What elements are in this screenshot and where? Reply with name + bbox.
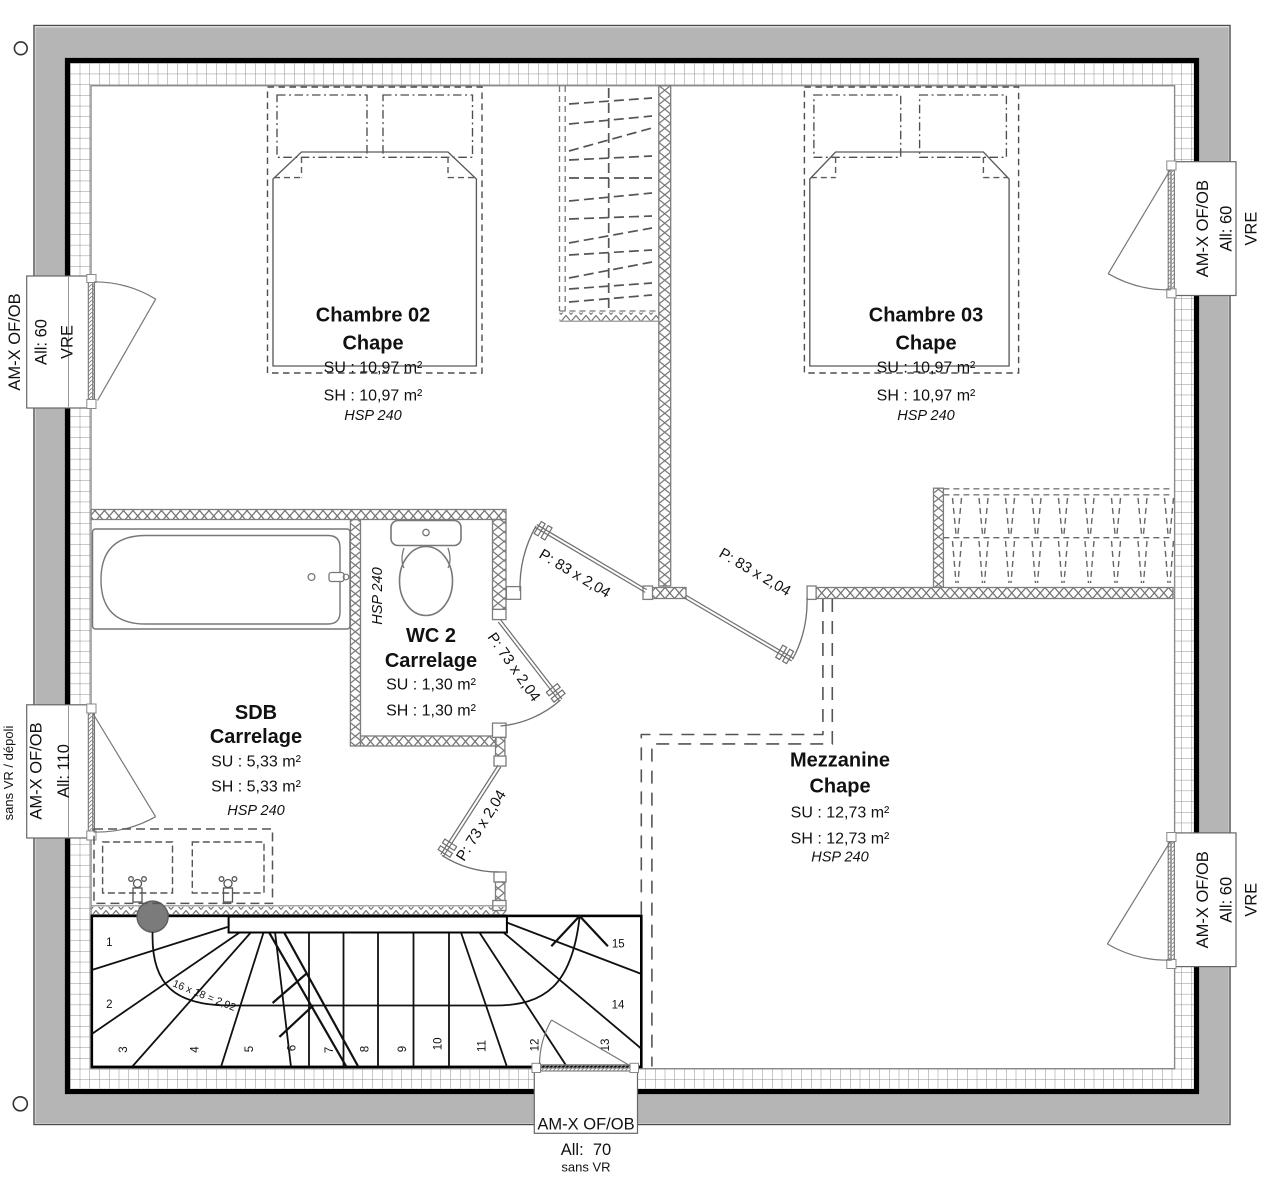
svg-text:VRE: VRE xyxy=(1243,883,1261,917)
svg-text:SH : 10,97 m²: SH : 10,97 m² xyxy=(324,388,423,405)
svg-text:SU : 5,33 m²: SU : 5,33 m² xyxy=(211,754,301,771)
svg-text:Carrelage: Carrelage xyxy=(385,650,477,672)
svg-text:All: 60: All: 60 xyxy=(1218,206,1236,252)
svg-text:5: 5 xyxy=(244,1046,256,1052)
svg-text:1: 1 xyxy=(106,937,112,949)
svg-text:AM-X OF/OB: AM-X OF/OB xyxy=(1194,180,1212,277)
svg-text:Chape: Chape xyxy=(895,333,956,355)
svg-text:WC 2: WC 2 xyxy=(406,625,456,647)
svg-text:15: 15 xyxy=(612,938,625,950)
svg-text:4: 4 xyxy=(190,1046,202,1053)
svg-text:VRE: VRE xyxy=(1243,212,1261,246)
svg-text:14: 14 xyxy=(612,1000,625,1012)
svg-text:7: 7 xyxy=(324,1047,336,1053)
svg-text:SDB: SDB xyxy=(235,702,277,724)
svg-text:AM-X OF/OB: AM-X OF/OB xyxy=(28,722,46,819)
svg-text:Carrelage: Carrelage xyxy=(210,726,302,748)
svg-text:sans VR: sans VR xyxy=(561,1160,610,1175)
svg-text:SU : 12,73 m²: SU : 12,73 m² xyxy=(791,805,890,822)
svg-text:HSP 240: HSP 240 xyxy=(370,567,386,625)
svg-text:SU : 10,97 m²: SU : 10,97 m² xyxy=(877,360,976,377)
svg-text:sans VR / dépoli: sans VR / dépoli xyxy=(1,726,16,821)
svg-text:2: 2 xyxy=(106,999,112,1011)
svg-text:SH : 10,97 m²: SH : 10,97 m² xyxy=(877,388,976,405)
svg-text:HSP 240: HSP 240 xyxy=(227,803,285,819)
svg-text:HSP 240: HSP 240 xyxy=(897,408,955,424)
svg-text:9: 9 xyxy=(397,1046,409,1052)
svg-text:8: 8 xyxy=(359,1046,371,1052)
svg-text:All: 110: All: 110 xyxy=(55,744,73,798)
svg-text:All: 70: All: 70 xyxy=(561,1141,611,1159)
svg-text:3: 3 xyxy=(118,1046,130,1052)
svg-text:Chambre 02: Chambre 02 xyxy=(316,305,431,327)
svg-text:All: 60: All: 60 xyxy=(32,319,50,365)
svg-text:AM-X OF/OB: AM-X OF/OB xyxy=(6,293,24,390)
svg-text:SU : 1,30 m²: SU : 1,30 m² xyxy=(386,677,476,694)
svg-text:SU : 10,97 m²: SU : 10,97 m² xyxy=(324,360,423,377)
svg-text:10: 10 xyxy=(433,1038,445,1051)
svg-text:SH : 1,30 m²: SH : 1,30 m² xyxy=(386,703,476,720)
svg-text:12: 12 xyxy=(529,1039,541,1052)
svg-text:AM-X OF/OB: AM-X OF/OB xyxy=(1194,851,1212,948)
svg-text:VRE: VRE xyxy=(58,325,76,359)
svg-text:6: 6 xyxy=(286,1045,298,1051)
svg-text:All: 60: All: 60 xyxy=(1218,877,1236,923)
svg-text:Chape: Chape xyxy=(809,776,870,798)
svg-text:11: 11 xyxy=(477,1040,489,1052)
svg-text:Chambre 03: Chambre 03 xyxy=(869,305,984,327)
svg-text:HSP 240: HSP 240 xyxy=(344,408,402,424)
svg-text:Mezzanine: Mezzanine xyxy=(790,750,890,772)
svg-text:Chape: Chape xyxy=(342,333,403,355)
svg-text:SH : 12,73 m²: SH : 12,73 m² xyxy=(791,831,890,848)
svg-text:SH : 5,33 m²: SH : 5,33 m² xyxy=(211,779,301,796)
svg-text:HSP 240: HSP 240 xyxy=(811,850,869,866)
svg-text:AM-X OF/OB: AM-X OF/OB xyxy=(537,1116,634,1134)
